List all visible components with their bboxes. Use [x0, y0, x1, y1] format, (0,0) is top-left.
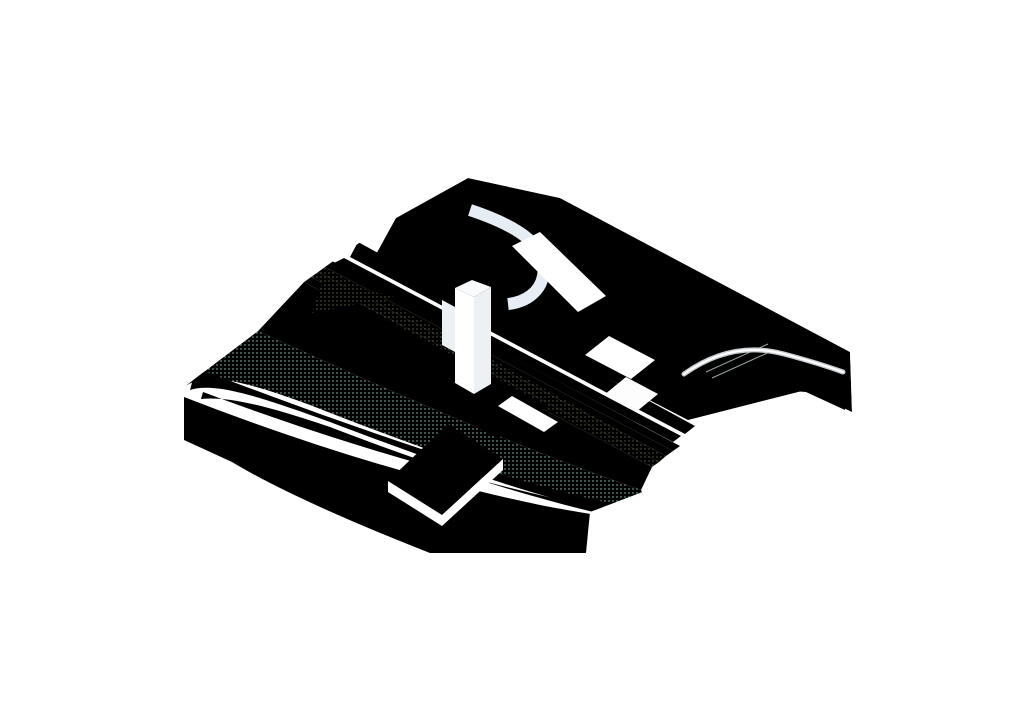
pier-tower-front: [455, 288, 474, 394]
axonometric-site-diagram: [0, 0, 1024, 723]
pier-tower-small: [442, 300, 455, 352]
pier-tower-side: [474, 287, 491, 394]
diagram-canvas: [0, 0, 1024, 723]
